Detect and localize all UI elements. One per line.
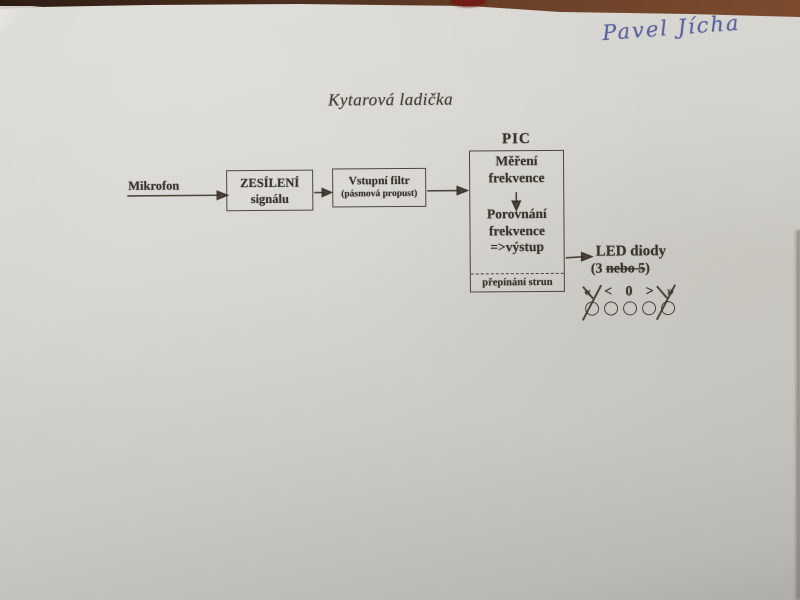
indicator-symbol-in-tune: 0 xyxy=(625,284,632,300)
pic-chip-label: PIC xyxy=(469,131,564,149)
compare-frequency-line1: Porovnání xyxy=(487,206,547,223)
output-line: =>výstup xyxy=(490,239,544,256)
measure-frequency-line1: Měření xyxy=(495,153,537,170)
string-switch-footer: přepínání strun xyxy=(471,273,564,292)
led-count-prefix: (3 xyxy=(591,262,606,277)
led-count-label: (3 nebo 5) xyxy=(591,261,650,277)
amplifier-box-line1: ZESÍLENÍ xyxy=(240,174,299,190)
paper-content: Pavel Jícha Kytarová ladička xyxy=(0,0,800,600)
photographed-paper: Pavel Jícha Kytarová ladička xyxy=(0,0,800,600)
input-filter-box: Vstupní filtr (pásmová propust) xyxy=(332,168,426,208)
amplifier-box: ZESÍLENÍ signálu xyxy=(226,170,313,212)
led-circle xyxy=(623,301,637,315)
measure-frequency-line2: frekvence xyxy=(489,169,545,186)
microphone-label: Mikrofon xyxy=(128,179,179,194)
led-circle xyxy=(604,301,618,315)
input-filter-line1: Vstupní filtr xyxy=(349,174,410,188)
amplifier-box-line2: signálu xyxy=(251,190,289,206)
pic-processing-box: Měření frekvence Porovnání frekvence =>v… xyxy=(469,150,565,293)
indicator-symbol-sharp: > xyxy=(646,284,654,300)
connector-arrows xyxy=(0,0,800,600)
compare-frequency-line2: frekvence xyxy=(489,222,545,239)
led-diodes-label: LED diody xyxy=(596,243,667,260)
led-count-suffix: ) xyxy=(645,261,650,276)
input-filter-line2: (pásmová propust) xyxy=(341,188,417,202)
indicator-symbol-flat: < xyxy=(604,285,612,301)
led-count-struck-text: nebo 5 xyxy=(606,261,645,276)
led-circle xyxy=(642,301,656,315)
